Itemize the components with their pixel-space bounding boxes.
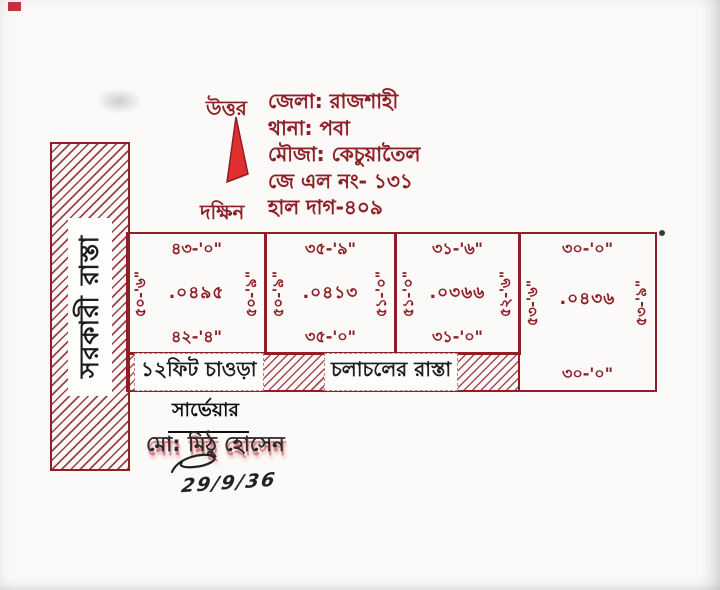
plot-1-east-depth: ৫০-'৯": [240, 270, 264, 316]
mouza-line: মৌজা: কেচুয়াতৈল: [268, 141, 420, 168]
access-road-width-label: ১২ফিট চাওড়া: [134, 353, 264, 391]
jl-number-line: জে এল নং- ১৩১: [268, 168, 420, 195]
plot-4-top-width: ৩০-'০": [520, 236, 655, 263]
plot-2-top-width: ৩৫-'৯": [266, 236, 395, 263]
plot-3-bottom-width: ৩১-'০": [396, 324, 519, 351]
scan-corner-mark: [8, 2, 21, 11]
stray-ink-dot: [659, 230, 665, 236]
district-line: জেলা: রাজশাহী: [268, 88, 420, 115]
plot-3-top-width: ৩১-'৬": [396, 236, 519, 263]
government-road: সরকারী রাস্তা: [50, 142, 130, 471]
plot-4: ৩০-'০" ৫৩-'৬" .০৪৩৬ ৫৩-'৯" ৩০-'০": [518, 232, 657, 392]
plot-2-east-depth: ৫১-'০": [370, 270, 394, 316]
access-road: ১২ফিট চাওড়া চলাচলের রাস্তা: [126, 352, 520, 392]
plot-3: ৩১-'৬" ৫১-'০" .০৩৬৬ ৫২-'৬" ৩১-'০": [394, 232, 521, 355]
plot-1-bottom-width: ৪২-'৪": [128, 324, 265, 351]
government-road-labelbox: সরকারী রাস্তা: [68, 218, 112, 396]
government-road-label: সরকারী রাস্তা: [68, 235, 112, 378]
plot-1: ৪৩-'০" ৫০-'৬" .০৪৯৫ ৫০-'৯" ৪২-'৪": [126, 232, 267, 355]
thana-line: থানা: পবা: [268, 115, 420, 142]
survey-map-page: উত্তর দক্ষিন জেলা: রাজশাহী থানা: পবা মৌজ…: [0, 0, 720, 590]
dag-number-line: হাল দাগ-৪০৯: [268, 194, 420, 221]
compass-south-label: দক্ষিন: [200, 198, 244, 231]
access-road-name-label: চলাচলের রাস্তা: [324, 353, 458, 391]
header-info: জেলা: রাজশাহী থানা: পবা মৌজা: কেচুয়াতৈল…: [268, 88, 420, 221]
plot-4-bottom-width: ৩০-'০": [520, 361, 655, 388]
plot-2-bottom-width: ৩৫-'০": [266, 324, 395, 351]
plot-4-east-depth: ৫৩-'৯": [630, 279, 654, 325]
scan-smudge: [96, 88, 142, 114]
plot-2: ৩৫-'৯" ৫০-'৯" .০৪১৩ ৫১-'০" ৩৫-'০": [264, 232, 397, 355]
plot-1-top-width: ৪৩-'০": [128, 236, 265, 263]
north-arrow-icon: [220, 116, 254, 192]
plot-3-east-depth: ৫২-'৬": [494, 270, 518, 316]
